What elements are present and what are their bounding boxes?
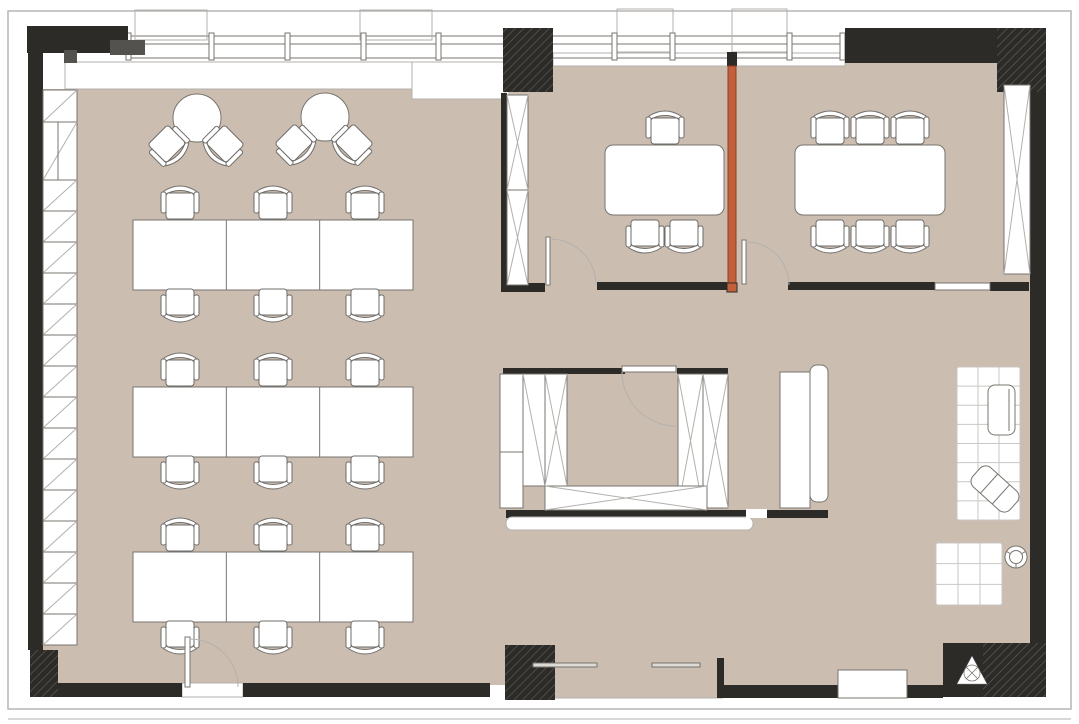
wall-segment <box>723 685 943 698</box>
office-chair <box>254 621 292 654</box>
storage-apron <box>506 517 753 530</box>
wall-segment <box>1030 83 1046 643</box>
door-leaf <box>622 366 676 372</box>
wall-segment <box>243 683 490 697</box>
sliding-door-track <box>533 663 597 667</box>
wall-segment <box>56 683 182 697</box>
desk <box>133 220 413 290</box>
wall-segment <box>597 282 727 290</box>
door-leaf <box>185 637 190 687</box>
tv-panel <box>810 365 828 502</box>
office-chair <box>254 456 292 489</box>
wall-segment <box>503 368 625 374</box>
door-leaf <box>546 237 550 285</box>
office-chair <box>851 220 889 253</box>
office-chair <box>811 111 849 144</box>
office-chair <box>646 111 684 144</box>
office-chair <box>811 220 849 253</box>
hatched-column <box>505 645 555 700</box>
office-chair <box>161 518 199 551</box>
lounge-chair <box>988 385 1015 435</box>
desk <box>133 387 413 457</box>
window-mullion <box>840 33 845 60</box>
office-chair <box>346 621 384 654</box>
hatched-column <box>983 643 1046 697</box>
door-leaf <box>742 240 746 284</box>
walkway-band <box>412 62 505 99</box>
office-chair <box>161 186 199 219</box>
window-mullion <box>361 33 366 60</box>
office-chair <box>254 289 292 322</box>
wall-segment <box>677 368 728 374</box>
meeting-table <box>605 145 724 215</box>
tv-cabinet <box>780 372 810 508</box>
office-chair <box>346 186 384 219</box>
window-mullion <box>787 33 792 60</box>
office-chair <box>254 186 292 219</box>
office-chair <box>891 111 929 144</box>
orange-partition-wall <box>728 66 736 283</box>
render-root <box>8 9 1071 719</box>
rug <box>936 543 1002 605</box>
office-chair <box>851 111 889 144</box>
office-chair <box>254 353 292 386</box>
window-mullion <box>612 33 617 60</box>
balcony-outline <box>617 9 673 52</box>
office-chair <box>254 518 292 551</box>
wall-segment <box>501 93 507 285</box>
wall-segment <box>28 40 43 650</box>
office-chair <box>891 220 929 253</box>
office-chair <box>346 518 384 551</box>
walkway-band <box>553 53 845 66</box>
wall-segment <box>727 52 737 66</box>
window-mullion <box>670 33 675 60</box>
entry-mat <box>838 670 907 698</box>
wall-segment <box>767 510 828 518</box>
floor-area <box>412 99 508 685</box>
office-chair <box>346 289 384 322</box>
floor-plan-drawing <box>0 0 1079 724</box>
floor-plan <box>0 0 1079 724</box>
office-chair <box>161 353 199 386</box>
hatched-column <box>30 650 58 697</box>
desk <box>133 552 413 622</box>
wall-segment <box>717 658 724 698</box>
wall-gap <box>746 509 767 518</box>
floor-area <box>555 685 723 698</box>
wall-segment <box>990 282 1029 291</box>
office-chair <box>346 456 384 489</box>
office-chair <box>665 220 703 253</box>
wall-segment <box>788 282 935 290</box>
office-chair <box>161 456 199 489</box>
walkway-band <box>65 62 412 89</box>
wall-junction-block <box>64 50 77 63</box>
window-mullion <box>436 33 441 60</box>
window-mullion <box>285 33 290 60</box>
storage-cabinet <box>500 374 523 508</box>
window-sill <box>935 283 990 290</box>
hatched-column <box>503 28 553 92</box>
balcony-outline <box>732 9 787 52</box>
wall-segment <box>845 28 997 63</box>
office-chair <box>161 621 199 654</box>
walkway-band <box>182 683 243 697</box>
office-chair <box>626 220 664 253</box>
wall-junction-block <box>110 40 145 55</box>
sliding-door-track <box>652 663 700 667</box>
office-chair <box>346 353 384 386</box>
hatched-column <box>997 28 1046 92</box>
meeting-table <box>795 145 945 215</box>
orange-partition-base <box>727 283 737 292</box>
office-chair <box>161 289 199 322</box>
window-mullion <box>209 33 214 60</box>
